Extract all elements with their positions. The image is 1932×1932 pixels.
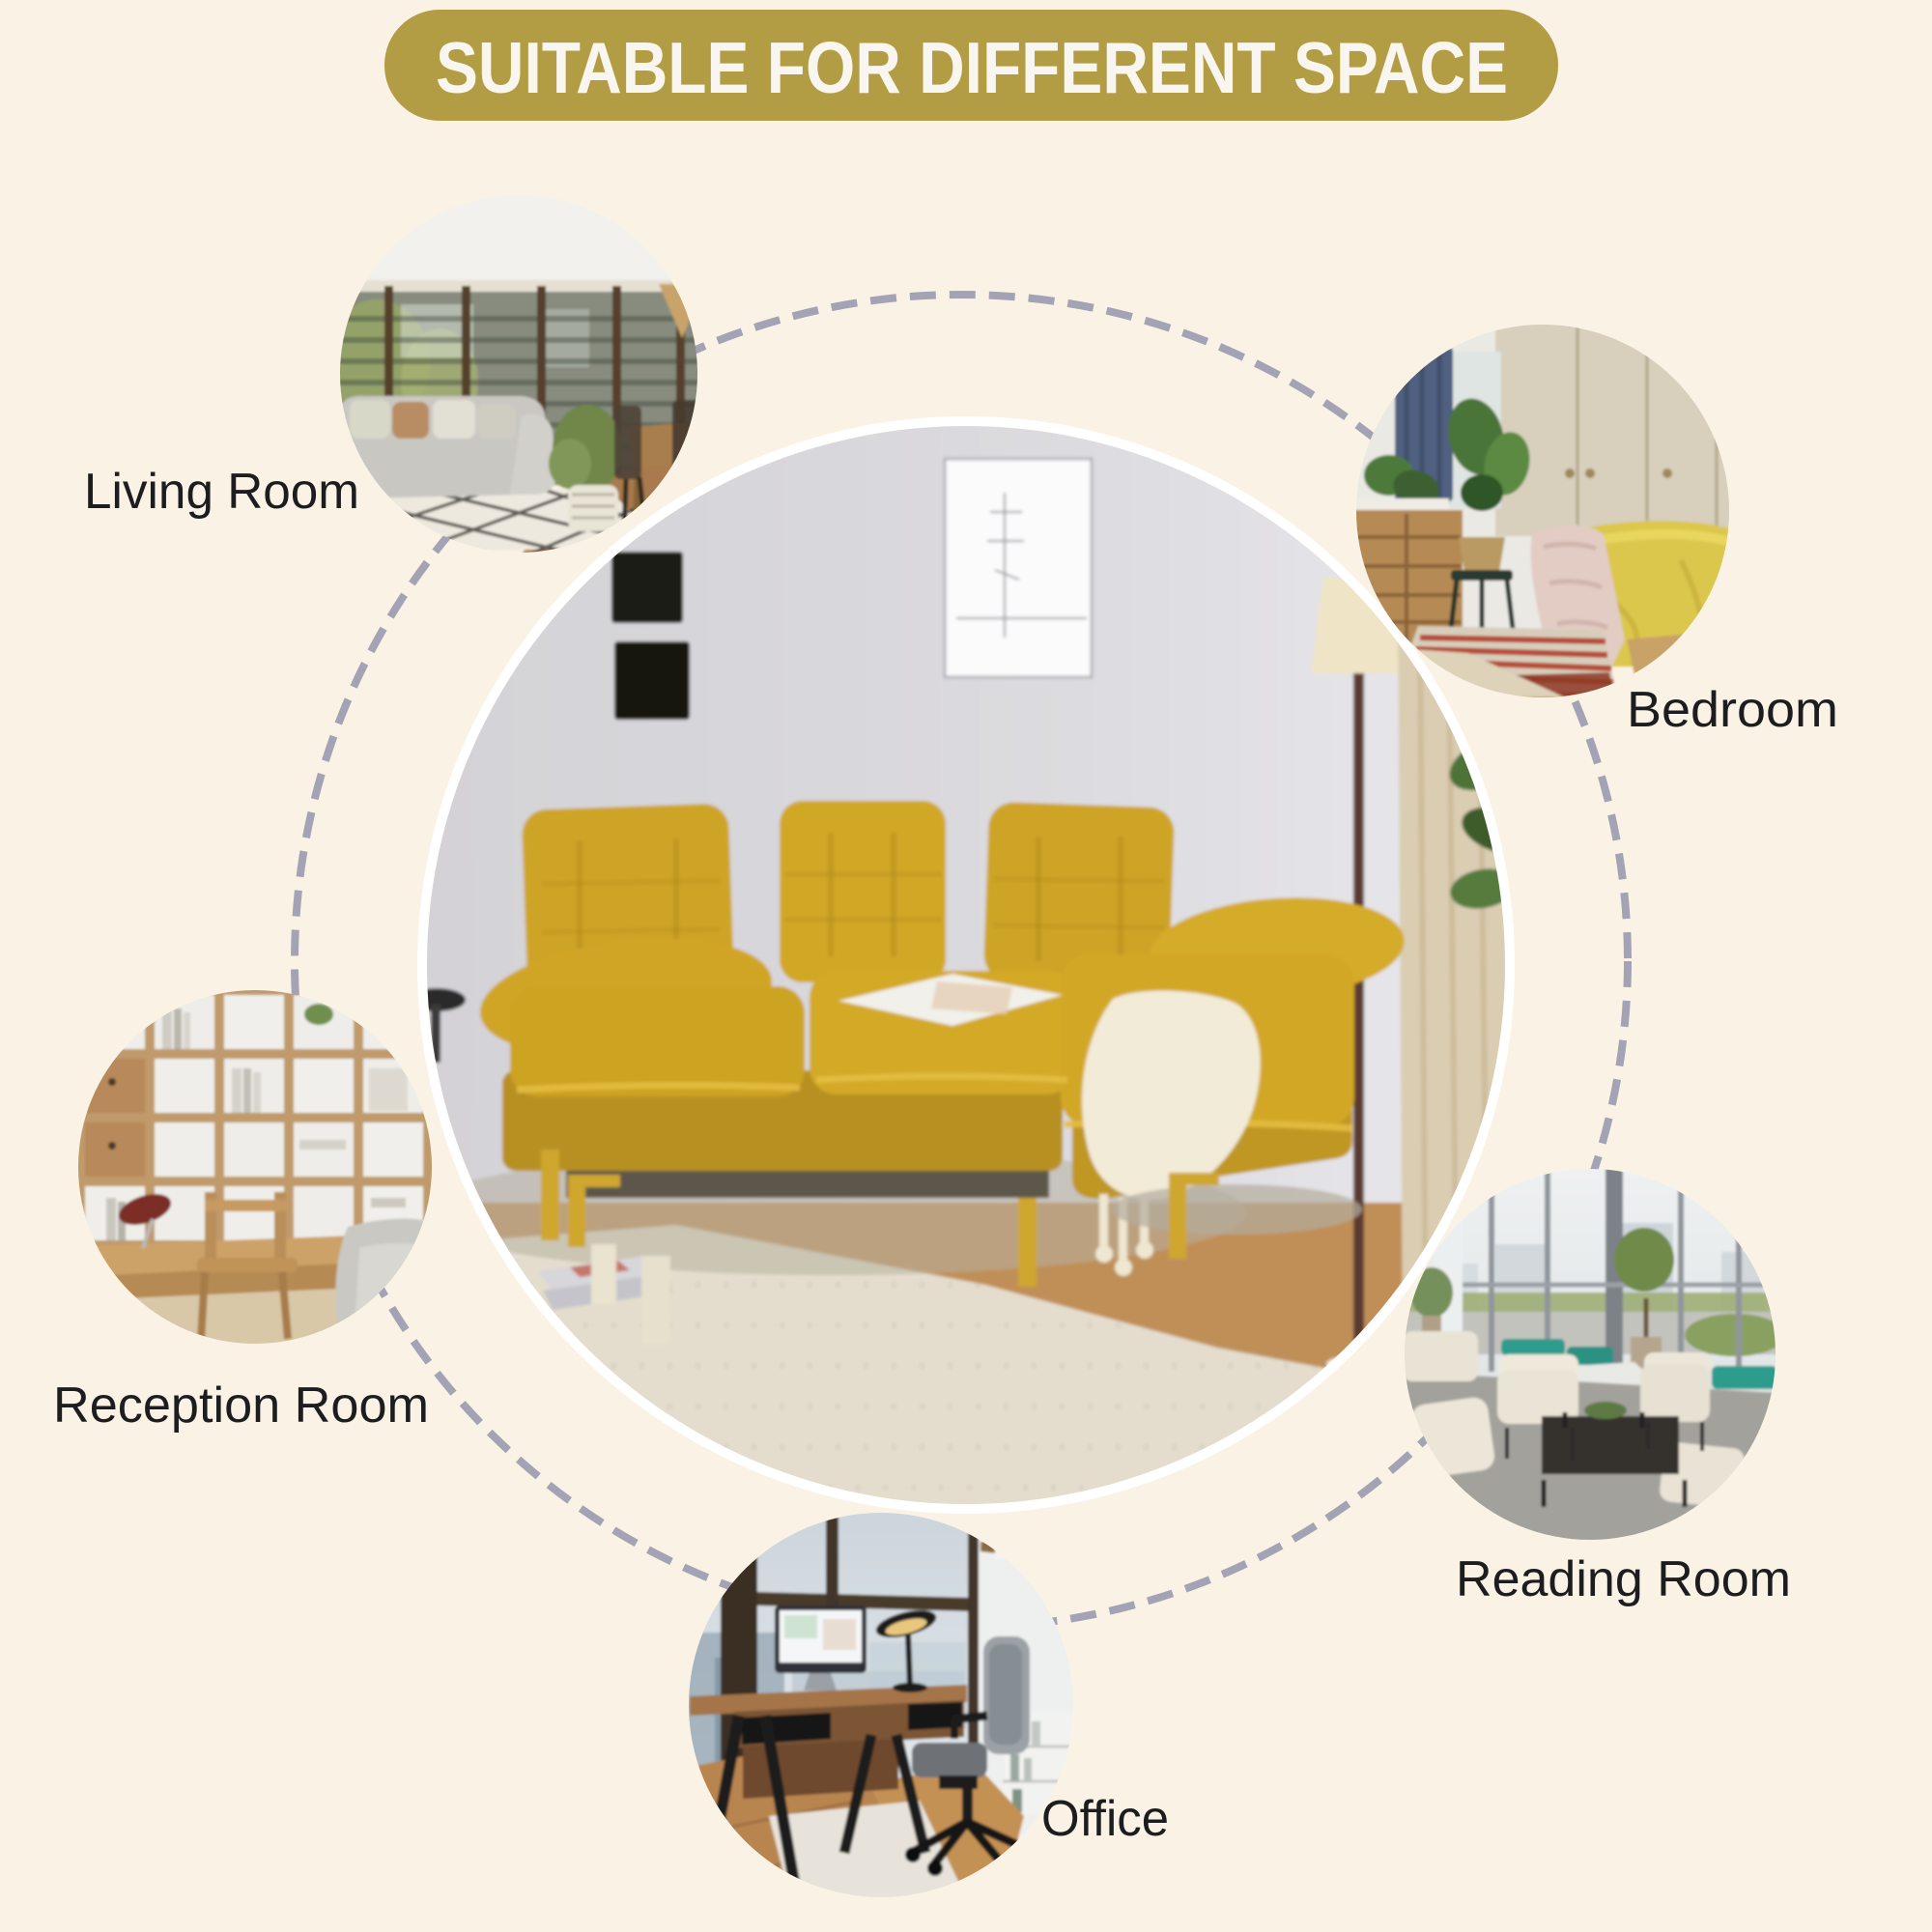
- svg-text:Reading Room: Reading Room: [1456, 1551, 1791, 1607]
- svg-text:SUITABLE FOR DIFFERENT SPACE: SUITABLE FOR DIFFERENT SPACE: [436, 27, 1508, 108]
- svg-text:Office: Office: [1041, 1791, 1169, 1847]
- svg-text:Bedroom: Bedroom: [1627, 682, 1838, 738]
- svg-text:Living Room: Living Room: [84, 464, 359, 520]
- svg-text:Reception Room: Reception Room: [53, 1378, 429, 1434]
